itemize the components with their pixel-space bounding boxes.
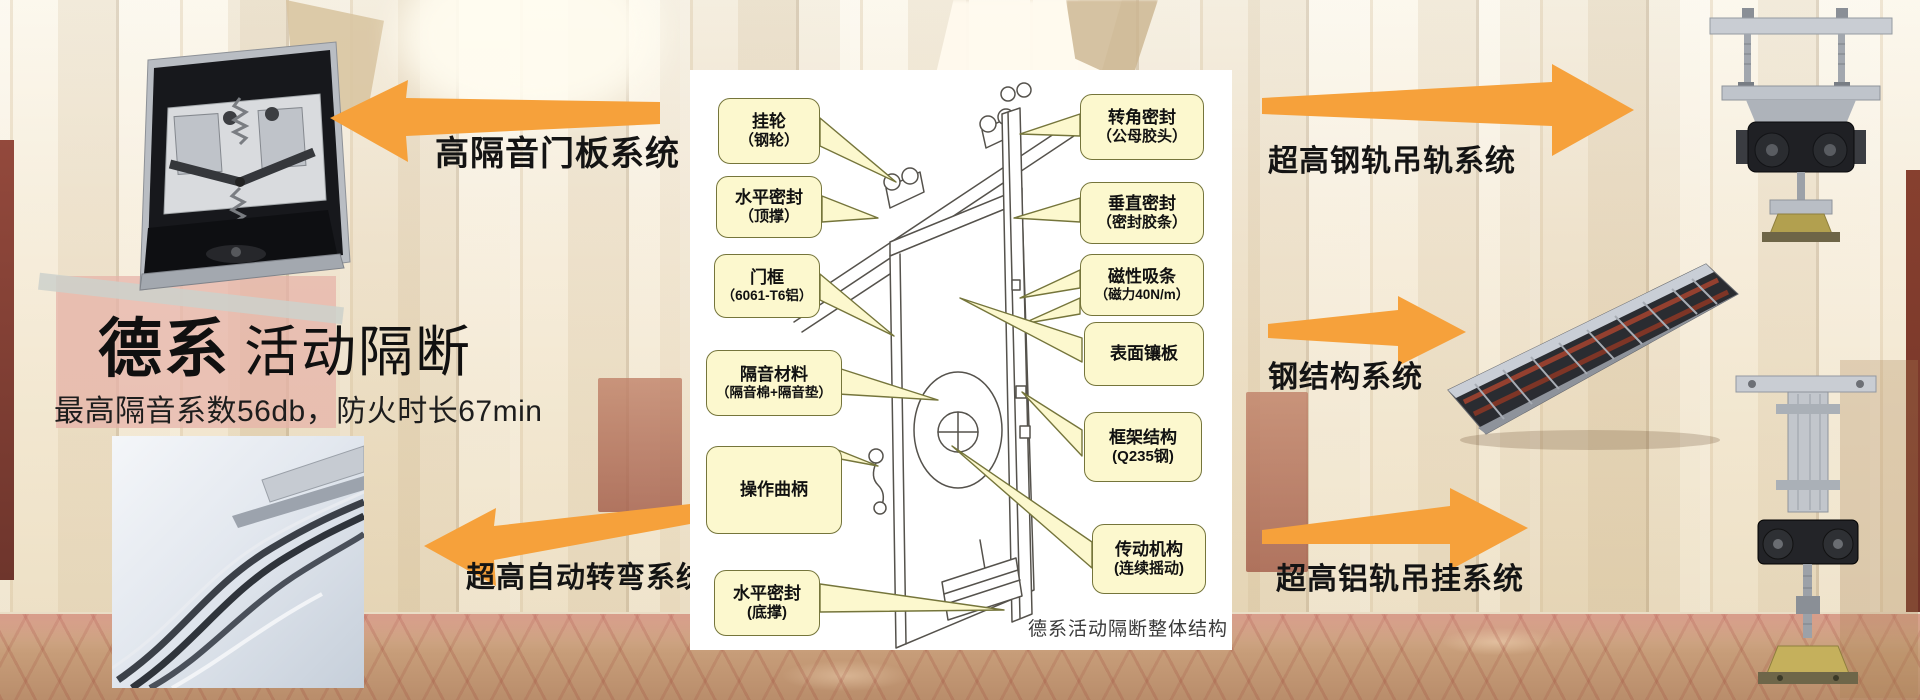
slide-stage: 高隔音门板系统 超高自动转弯系统 超高钢轨吊轨系统 钢结构系统 超高铝轨吊挂系统… [0,0,1920,700]
background-red-door-left [598,378,682,512]
callout-frame-structure: 框架结构 (Q235钢) [1084,412,1202,482]
photo-aluminum-hanger [1700,360,1918,698]
label-steel-structure-system: 钢结构系统 [1268,352,1423,396]
label-door-panel-system: 高隔音门板系统 [435,126,680,175]
callout-horizontal-seal-bottom: 水平密封 (底撑) [714,570,820,636]
callout-magnetic-strip: 磁性吸条 （磁力40N/m） [1080,254,1204,316]
callout-hanging-wheel: 挂轮 （钢轮） [718,98,820,164]
brand-title: 德系 活动隔断 [98,298,472,390]
photo-curved-track [112,436,364,688]
callout-door-frame: 门框 （6061-T6铝） [714,254,820,318]
callout-corner-seal: 转角密封 （公母胶头） [1080,94,1204,160]
label-aluminum-rail-system: 超高铝轨吊挂系统 [1276,554,1524,598]
brand-title-bold: 德系 [98,298,230,390]
label-steel-rail-system: 超高钢轨吊轨系统 [1268,136,1516,180]
callout-operating-crank: 操作曲柄 [706,446,842,534]
callout-horizontal-seal-top: 水平密封 （顶撑） [716,176,822,238]
label-auto-turning-system: 超高自动转弯系统 [466,554,706,596]
photo-steel-trolley [1686,4,1916,244]
brand-subtitle: 最高隔音系数56db，防火时长67min [54,386,542,430]
callout-transmission: 传动机构 (连续摇动) [1092,524,1206,594]
brand-title-light: 活动隔断 [244,307,472,387]
left-wall-red-trim [0,140,14,580]
diagram-caption: 德系活动隔断整体结构 [1028,614,1224,641]
callout-sound-insulation: 隔音材料 （隔音棉+隔音垫） [706,350,842,416]
diagram-panel: 挂轮 （钢轮） 水平密封 （顶撑） 门框 （6061-T6铝） 隔音材料 （隔音… [690,70,1232,650]
callout-surface-panel: 表面镶板 [1084,322,1204,386]
callout-vertical-seal: 垂直密封 （密封胶条） [1080,182,1204,244]
